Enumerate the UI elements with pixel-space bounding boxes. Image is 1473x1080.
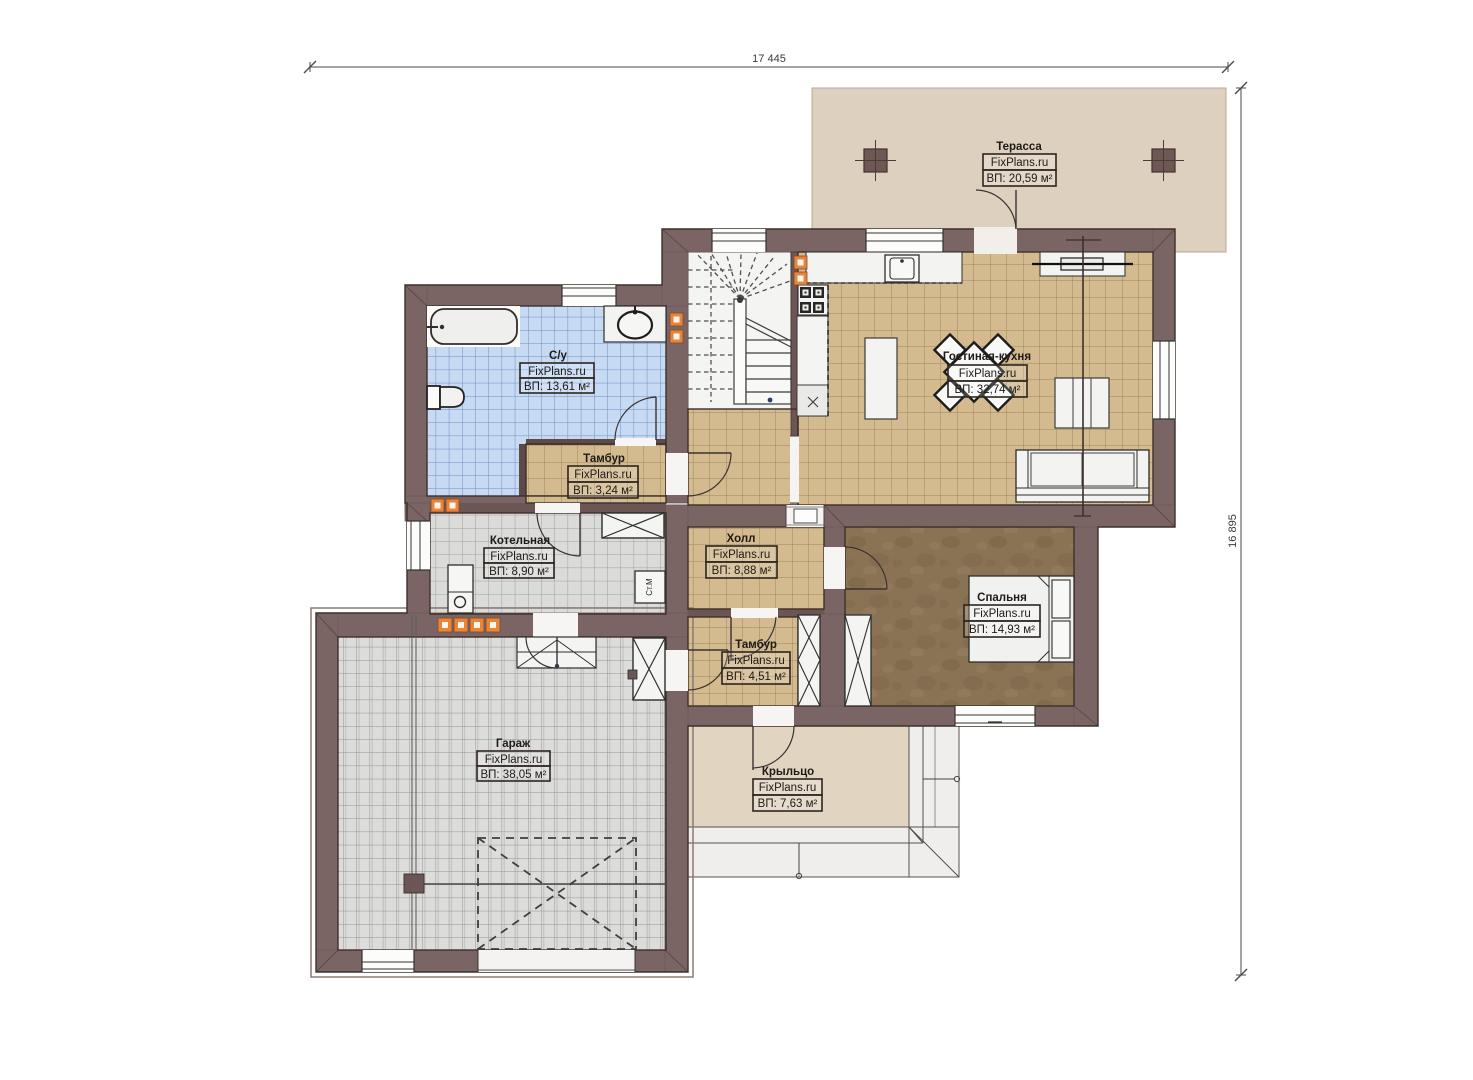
svg-text:ВП: 3,24 м²: ВП: 3,24 м² [573, 485, 633, 497]
svg-text:16 895: 16 895 [1227, 514, 1239, 548]
svg-text:FixPlans.ru: FixPlans.ru [759, 782, 817, 794]
svg-text:Котельная: Котельная [490, 535, 550, 547]
svg-text:Тамбур: Тамбур [583, 453, 625, 465]
svg-text:ВП: 7,63 м²: ВП: 7,63 м² [758, 798, 818, 810]
svg-text:ВП: 8,90 м²: ВП: 8,90 м² [489, 566, 549, 578]
svg-text:ВП: 14,93 м²: ВП: 14,93 м² [969, 624, 1035, 636]
svg-text:17 445: 17 445 [752, 53, 786, 65]
svg-text:ВП: 38,05 м²: ВП: 38,05 м² [480, 769, 546, 781]
svg-text:ВП: 13,61 м²: ВП: 13,61 м² [524, 381, 590, 393]
svg-text:FixPlans.ru: FixPlans.ru [528, 366, 586, 378]
svg-text:ВП: 32,74 м²: ВП: 32,74 м² [954, 384, 1020, 396]
svg-text:Тамбур: Тамбур [735, 639, 777, 651]
svg-text:С/у: С/у [549, 350, 568, 362]
svg-text:Терасса: Терасса [996, 141, 1042, 153]
svg-text:FixPlans.ru: FixPlans.ru [713, 549, 771, 561]
svg-text:FixPlans.ru: FixPlans.ru [485, 754, 543, 766]
svg-text:FixPlans.ru: FixPlans.ru [574, 469, 632, 481]
svg-text:Крыльцо: Крыльцо [762, 766, 814, 778]
svg-text:Ст.М: Ст.М [645, 578, 654, 596]
svg-text:Гостиная-кухня: Гостиная-кухня [943, 351, 1031, 363]
svg-text:ВП: 8,88 м²: ВП: 8,88 м² [712, 565, 772, 577]
svg-text:FixPlans.ru: FixPlans.ru [727, 655, 785, 667]
svg-text:FixPlans.ru: FixPlans.ru [959, 368, 1017, 380]
svg-text:Холл: Холл [727, 533, 756, 545]
svg-text:FixPlans.ru: FixPlans.ru [490, 551, 548, 563]
svg-text:Гараж: Гараж [496, 738, 531, 750]
svg-text:FixPlans.ru: FixPlans.ru [991, 157, 1049, 169]
svg-text:ВП: 20,59 м²: ВП: 20,59 м² [986, 173, 1052, 185]
svg-text:Спальня: Спальня [977, 592, 1027, 604]
svg-text:ВП: 4,51 м²: ВП: 4,51 м² [726, 671, 786, 683]
svg-text:FixPlans.ru: FixPlans.ru [973, 608, 1031, 620]
